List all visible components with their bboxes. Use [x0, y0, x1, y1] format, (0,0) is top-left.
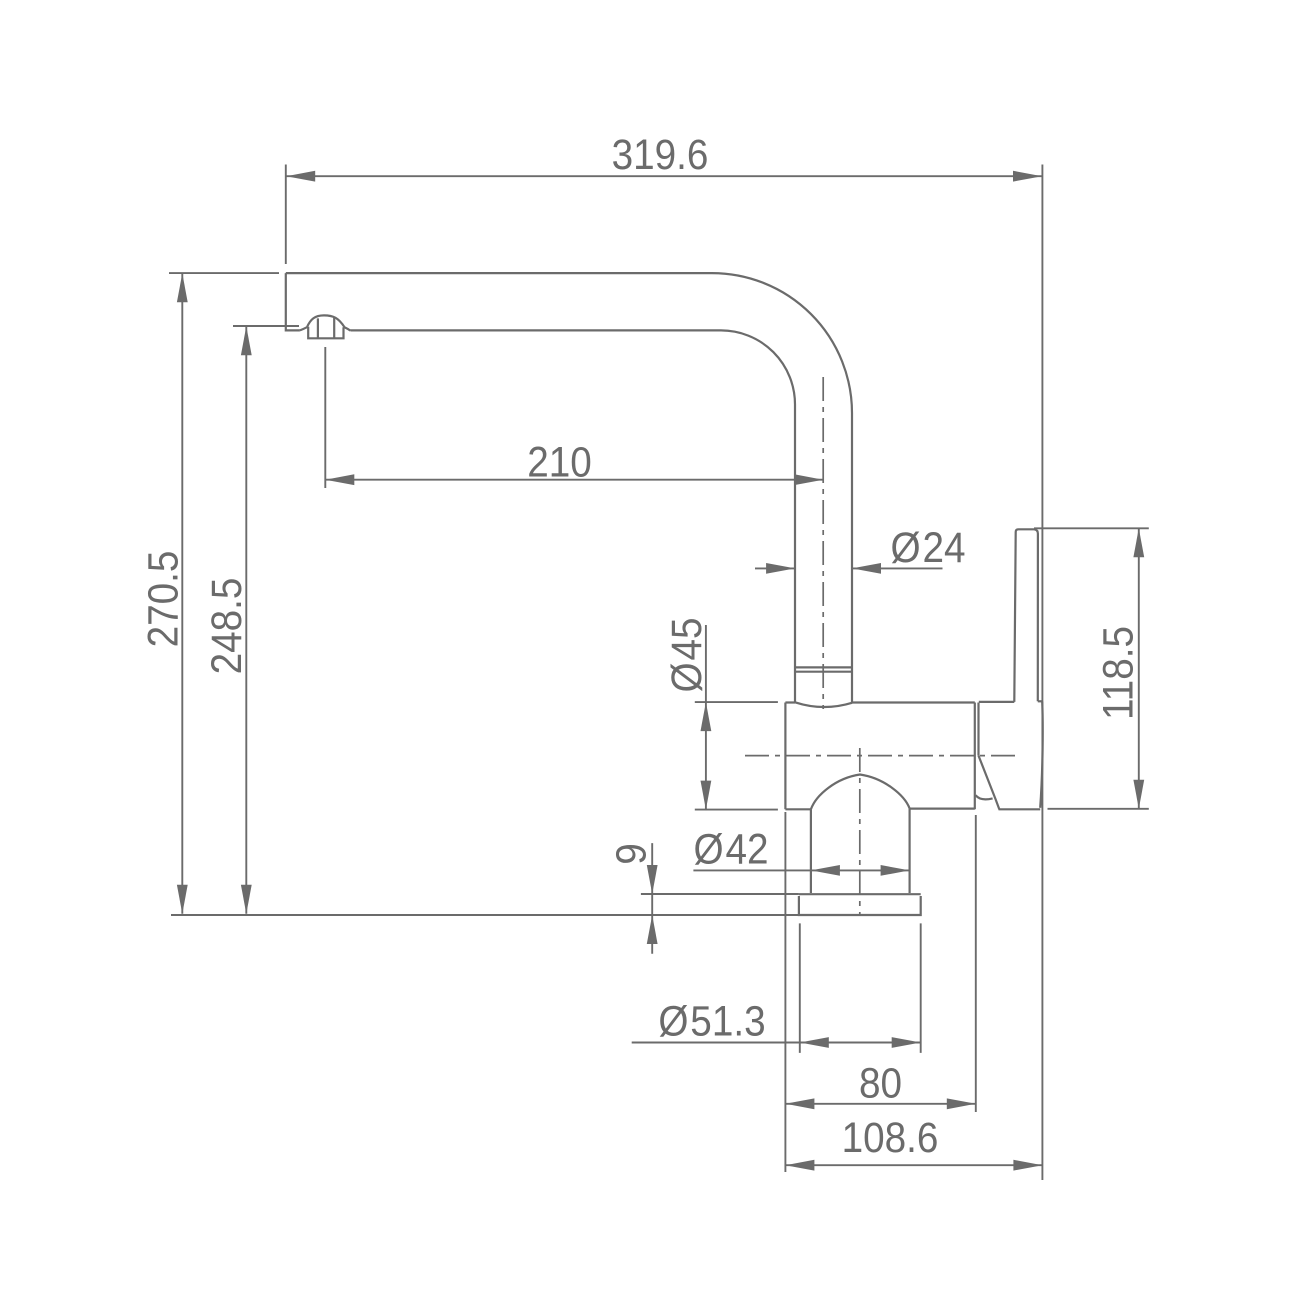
- svg-text:Ø24: Ø24: [891, 523, 966, 571]
- svg-text:9: 9: [607, 843, 655, 865]
- svg-text:108.6: 108.6: [842, 1113, 939, 1161]
- svg-text:Ø51.3: Ø51.3: [658, 997, 765, 1045]
- svg-text:248.5: 248.5: [202, 578, 250, 675]
- svg-text:80: 80: [859, 1059, 902, 1107]
- svg-text:118.5: 118.5: [1094, 626, 1142, 720]
- svg-text:270.5: 270.5: [139, 551, 187, 648]
- svg-text:319.6: 319.6: [612, 130, 709, 178]
- svg-text:Ø45: Ø45: [662, 618, 710, 693]
- svg-text:210: 210: [527, 438, 592, 486]
- svg-text:Ø42: Ø42: [694, 825, 769, 873]
